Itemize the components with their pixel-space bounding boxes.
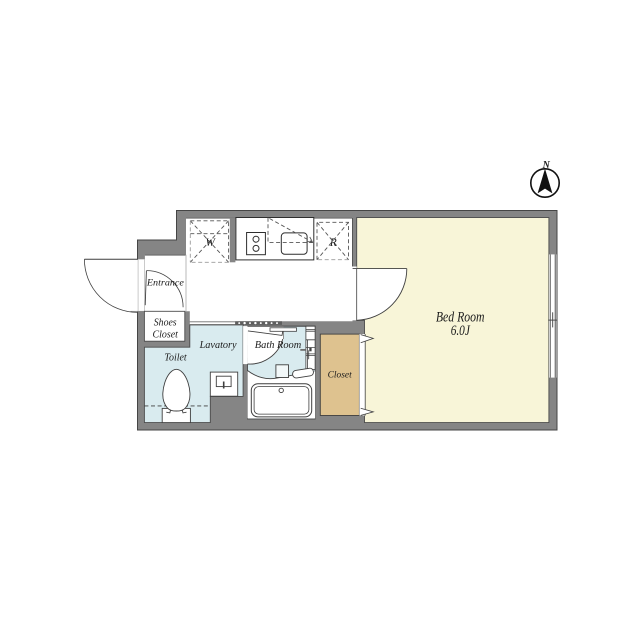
svg-text:Closet: Closet: [153, 329, 179, 340]
svg-text:Lavatory: Lavatory: [199, 340, 238, 351]
svg-text:6.0J: 6.0J: [451, 323, 471, 339]
svg-text:N: N: [542, 160, 551, 171]
svg-text:Closet: Closet: [328, 370, 352, 381]
svg-text:Entrance: Entrance: [146, 278, 184, 288]
svg-text:Toilet: Toilet: [164, 352, 187, 363]
svg-text:Bath Room: Bath Room: [255, 340, 301, 351]
svg-text:R: R: [329, 237, 337, 249]
svg-text:Shoes: Shoes: [154, 318, 177, 329]
